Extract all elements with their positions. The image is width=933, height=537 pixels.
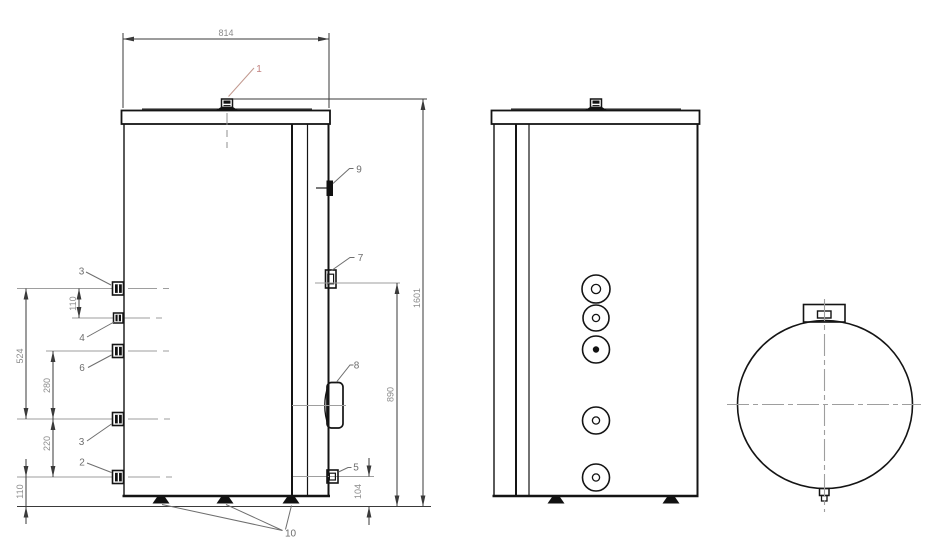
side-view-feet — [153, 497, 300, 504]
port-8-flange — [292, 383, 346, 429]
callout-3-lower: 3 — [79, 424, 112, 448]
port-9 — [316, 181, 333, 197]
callout-1: 1 — [229, 64, 263, 97]
front-view-feet — [548, 497, 680, 504]
callout-6-label: 6 — [79, 363, 85, 374]
callout-4: 4 — [79, 322, 114, 344]
port-3-upper — [113, 282, 124, 295]
technical-drawing-canvas: 814 1601 890 104 524 — [0, 0, 933, 537]
callout-6: 6 — [79, 355, 111, 374]
port-5 — [293, 470, 374, 483]
dim-port6-port3-label: 280 — [42, 378, 52, 393]
dim-110-upper: 110 — [68, 289, 81, 319]
dim-524: 524 — [15, 289, 28, 420]
front-port-circle-2 — [583, 305, 609, 331]
side-view-port-centerlines — [17, 289, 172, 478]
front-port-circle-5 — [583, 464, 610, 491]
port-6 — [113, 345, 124, 358]
side-view: 814 1601 890 104 524 — [15, 28, 431, 537]
port-2 — [113, 471, 124, 484]
drawing-sheet: 814 1601 890 104 524 — [0, 0, 933, 537]
front-port-circle-4 — [583, 407, 610, 434]
callout-8-label: 8 — [354, 361, 360, 372]
dim-220: 220 — [42, 419, 55, 477]
callout-3-lower-label: 3 — [79, 437, 85, 448]
callout-5-label: 5 — [353, 463, 359, 474]
callout-7-label: 7 — [358, 253, 364, 264]
front-view-top-plate — [492, 111, 700, 125]
dim-port3-port2-label: 220 — [42, 436, 52, 451]
dim-280: 280 — [42, 351, 55, 419]
top-view-centerlines — [727, 299, 921, 512]
callout-2: 2 — [79, 458, 111, 473]
dim-890: 890 — [386, 283, 400, 507]
dim-110-lower: 110 — [15, 459, 28, 524]
top-view — [727, 299, 921, 512]
callout-9-label: 9 — [356, 165, 362, 176]
port-3-lower — [113, 413, 124, 426]
dim-overall-height-label: 1601 — [412, 288, 422, 308]
callout-10: 10 — [162, 505, 297, 537]
callout-9: 9 — [333, 165, 362, 184]
callout-10-label: 10 — [285, 529, 297, 537]
callout-4-label: 4 — [79, 333, 85, 344]
dim-port2-height-label: 110 — [15, 484, 25, 498]
callout-2-label: 2 — [79, 458, 85, 469]
callout-3-upper: 3 — [79, 267, 111, 286]
callout-7: 7 — [332, 253, 364, 271]
side-view-top-plate — [122, 111, 331, 125]
dim-814: 814 — [123, 28, 329, 108]
dim-port3-span-label: 524 — [15, 348, 25, 363]
callout-3-upper-label: 3 — [79, 267, 85, 278]
dim-port3-port4-label: 110 — [68, 296, 78, 310]
dim-1601: 1601 — [412, 99, 425, 507]
front-view — [492, 99, 700, 504]
dim-top-width-label: 814 — [218, 28, 233, 38]
front-port-circle-3 — [583, 336, 610, 363]
callout-1-label: 1 — [256, 64, 262, 75]
callout-5: 5 — [339, 463, 360, 474]
dim-port7-height-label: 890 — [386, 387, 396, 402]
front-view-top-cap — [585, 99, 607, 110]
front-port-circle-1 — [582, 275, 610, 303]
dim-port5-height-label: 104 — [353, 484, 363, 499]
side-view-body — [122, 109, 331, 496]
callout-8: 8 — [337, 361, 360, 383]
port-4 — [114, 313, 124, 323]
